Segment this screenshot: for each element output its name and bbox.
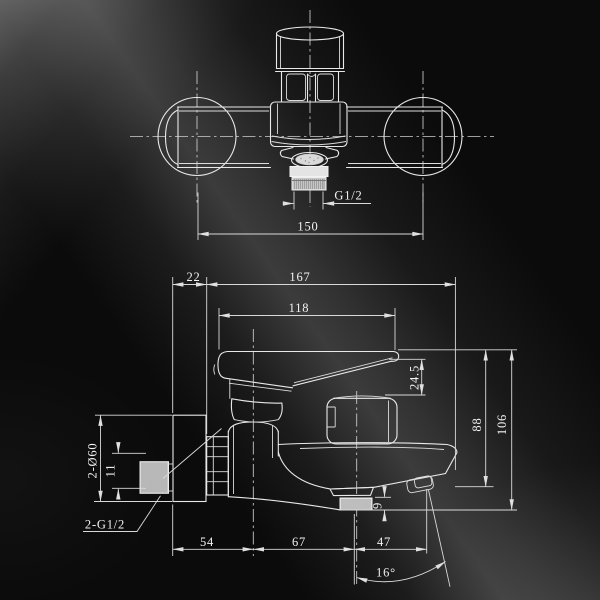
side-view: 22 167 118 24.5 88 106 bbox=[83, 270, 517, 587]
dim-label-150: 150 bbox=[297, 220, 318, 234]
aerator-flange bbox=[330, 487, 374, 495]
dim-label-2-d60: 2-Ø60 bbox=[86, 443, 100, 479]
dim-label-11: 11 bbox=[104, 464, 118, 478]
diverter-pull-tab bbox=[406, 475, 434, 493]
spout bbox=[278, 443, 457, 510]
front-width-dimension: 150 bbox=[198, 193, 423, 241]
dim-label-22: 22 bbox=[186, 270, 200, 284]
inlet-leader-line bbox=[163, 429, 222, 479]
front-outlet-assembly bbox=[280, 148, 338, 191]
dim-label-167: 167 bbox=[289, 270, 310, 284]
side-dimensions: 22 167 118 24.5 88 106 bbox=[83, 270, 517, 587]
outlet-flange bbox=[290, 167, 328, 177]
dim-label-67: 67 bbox=[292, 535, 306, 549]
union-nut bbox=[207, 437, 229, 495]
front-valve-block bbox=[271, 102, 348, 147]
dim-label-106: 106 bbox=[495, 414, 509, 435]
valve-body bbox=[228, 422, 339, 510]
outlet-thread bbox=[292, 178, 326, 191]
dim-label-9: 9 bbox=[371, 502, 385, 509]
technical-drawing-page: G1/2 150 bbox=[0, 0, 600, 600]
wall-plate bbox=[173, 415, 206, 501]
spout-angle-line bbox=[429, 490, 451, 587]
faucet-dimension-drawing: G1/2 150 bbox=[0, 0, 600, 600]
dim-label-24-5: 24.5 bbox=[408, 365, 422, 390]
dim-label-16deg: 16° bbox=[376, 566, 396, 580]
front-outlet-thread-dimension: G1/2 bbox=[283, 189, 371, 210]
front-view: G1/2 150 bbox=[130, 10, 494, 240]
dim-label-54: 54 bbox=[200, 535, 214, 549]
dim-label-2-g12: 2-G1/2 bbox=[85, 518, 125, 532]
dim-label-g12: G1/2 bbox=[334, 189, 362, 203]
dim-label-47: 47 bbox=[377, 535, 391, 549]
dim-label-88: 88 bbox=[470, 417, 484, 431]
diverter-knob bbox=[327, 396, 397, 444]
aerator-face bbox=[296, 154, 324, 165]
dim-label-118: 118 bbox=[289, 301, 310, 315]
lever-handle bbox=[214, 352, 399, 423]
